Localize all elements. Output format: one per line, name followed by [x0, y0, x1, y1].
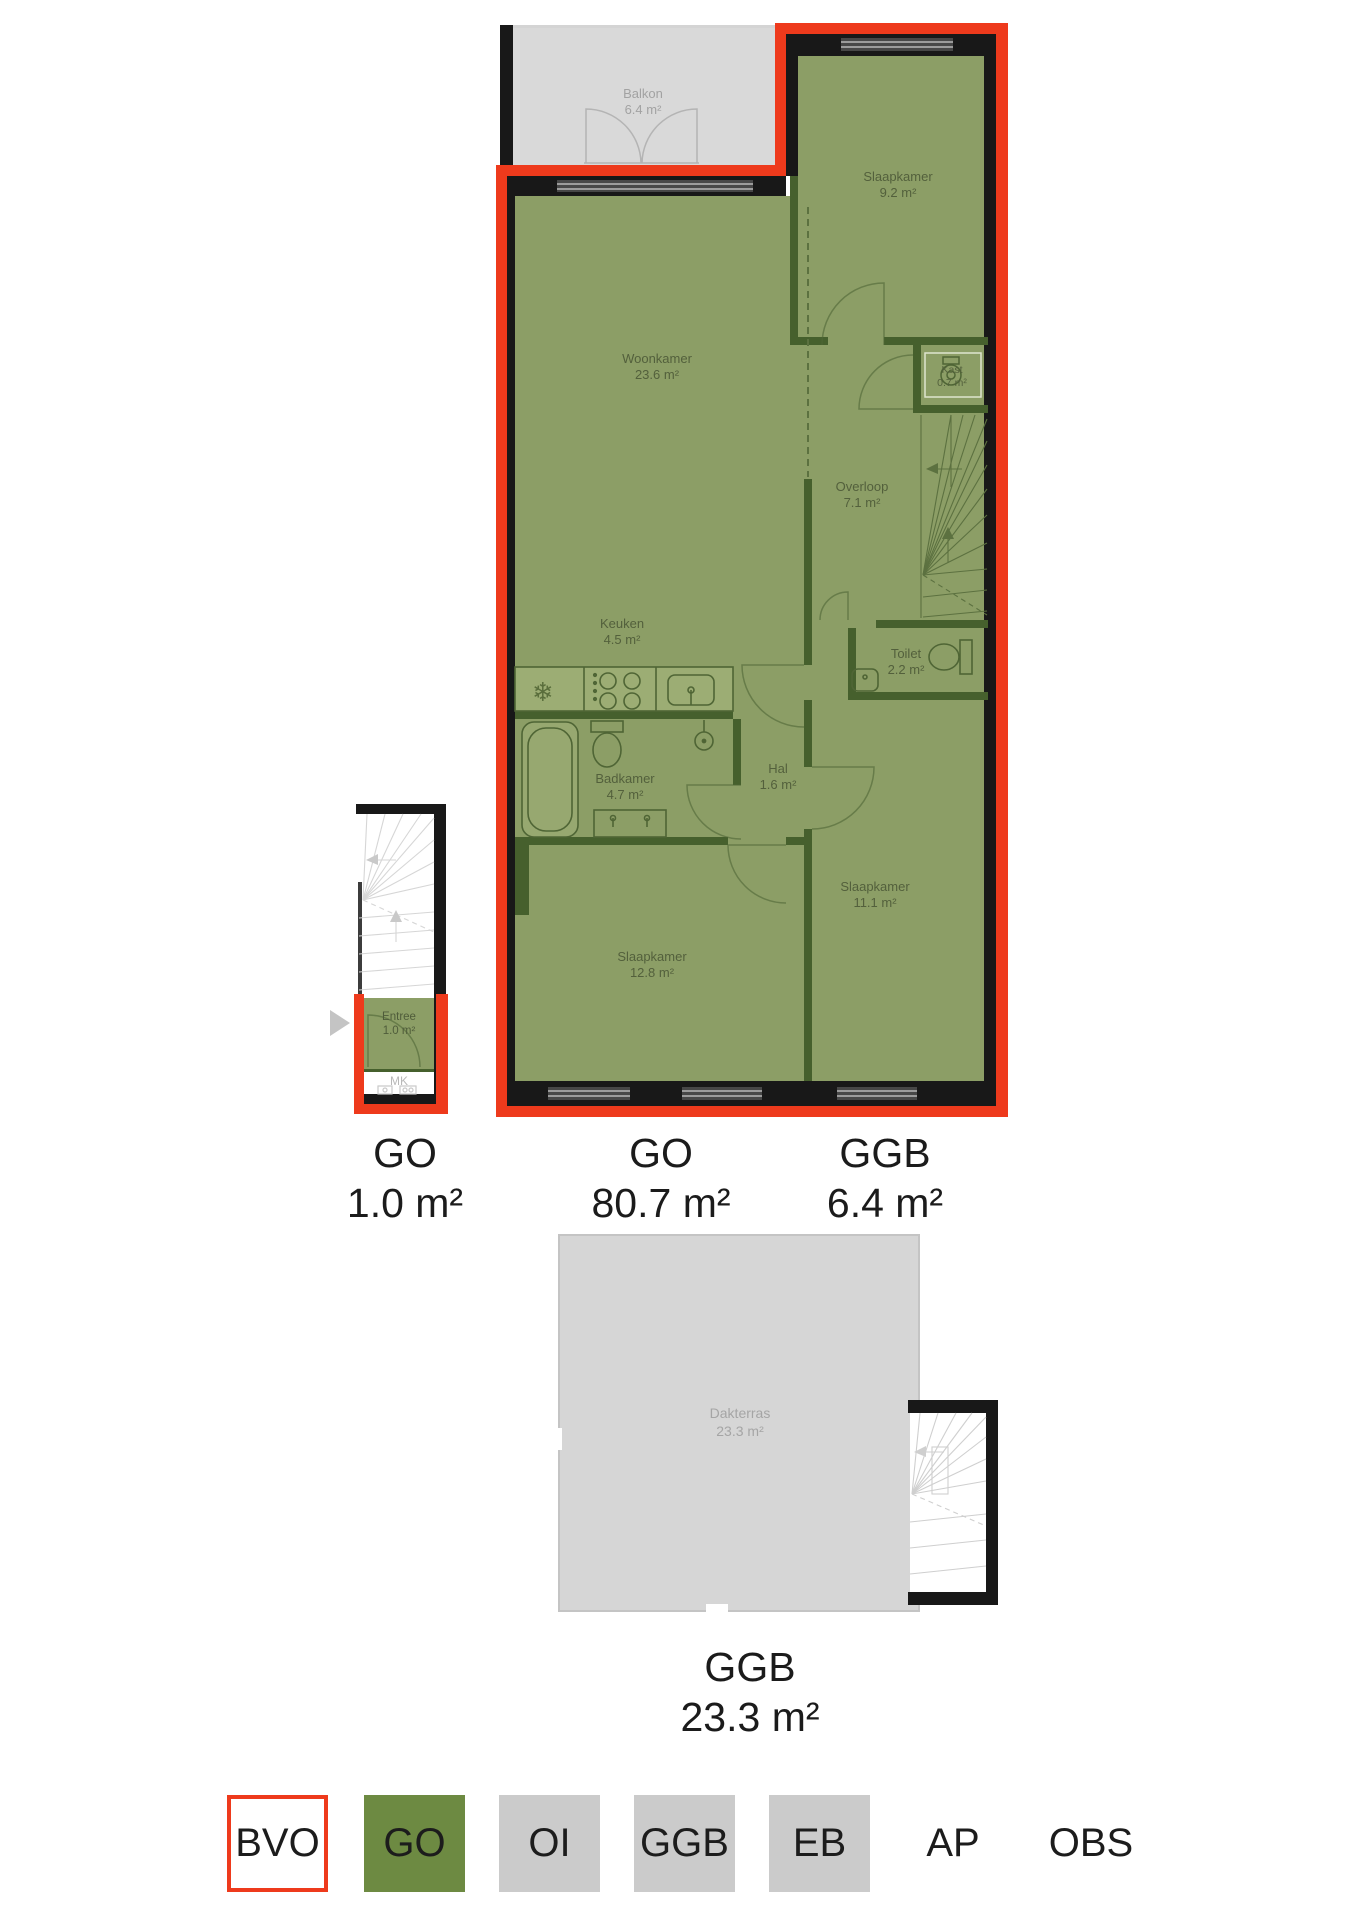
door-arc-kast — [859, 355, 913, 409]
room-label-entree: Entree1.0 m² — [382, 1010, 416, 1038]
room-name: Slaapkamer — [863, 169, 932, 185]
room-name: Kast — [937, 364, 967, 377]
room-area: 9.2 m² — [863, 185, 932, 201]
legend-code: BVO — [235, 1821, 319, 1866]
roof-linework — [556, 1232, 1006, 1613]
area-label-ggb-balcony: GGB 6.4 m² — [755, 1128, 1015, 1228]
room-label-balkon: Balkon6.4 m² — [623, 86, 663, 118]
roof-stairs — [910, 1413, 986, 1574]
legend-item-ap: AP — [903, 1795, 1003, 1892]
room-name: Keuken — [600, 616, 644, 632]
room-area: 23.6 m² — [622, 367, 692, 383]
room-area: 1.0 m² — [382, 1024, 416, 1038]
door-arc-toilet — [820, 592, 848, 620]
room-name: Woonkamer — [622, 351, 692, 367]
area-code: GO — [275, 1128, 535, 1178]
room-label-hal: Hal1.6 m² — [760, 761, 797, 793]
legend-item-obs: OBS — [1041, 1795, 1141, 1892]
room-label-slaapkamer-1: Slaapkamer9.2 m² — [863, 169, 932, 201]
room-name: Balkon — [623, 86, 663, 102]
door-arcs — [687, 283, 913, 903]
room-area: 0.7 m² — [937, 377, 967, 390]
wc-tank-icon — [960, 640, 972, 674]
entry-stairs — [359, 814, 434, 990]
legend-code: GO — [383, 1821, 445, 1866]
legend-code: GGB — [640, 1821, 729, 1866]
area-label-go-main: GO 80.7 m² — [531, 1128, 791, 1228]
room-label-toilet: Toilet2.2 m² — [888, 646, 925, 678]
room-name: Slaapkamer — [840, 879, 909, 895]
legend-item-go: GO — [364, 1795, 465, 1892]
roof-terrace-plan: Dakterras23.3 m² — [556, 1232, 1006, 1613]
room-area: 6.4 m² — [623, 102, 663, 118]
door-arc-hal — [742, 665, 804, 727]
area-label-ggb-roof: GGB 23.3 m² — [620, 1642, 880, 1742]
stair-arrow-up-icon — [390, 910, 402, 922]
legend-item-bvo: BVO — [227, 1795, 328, 1892]
door-arc-bedroom1 — [822, 283, 884, 345]
room-area: 11.1 m² — [840, 895, 909, 911]
area-code: GGB — [620, 1642, 880, 1692]
legend-item-ggb: GGB — [634, 1795, 735, 1892]
room-label-dakterras: Dakterras23.3 m² — [710, 1404, 771, 1440]
stair-arrow-icon — [926, 463, 938, 474]
area-value: 1.0 m² — [275, 1178, 535, 1228]
floorplan-page: ❄ — [0, 0, 1358, 1920]
legend-code: OBS — [1049, 1821, 1133, 1866]
room-name: Entree — [382, 1010, 416, 1024]
room-label-kast: Kast0.7 m² — [937, 364, 967, 390]
legend-code: AP — [926, 1821, 979, 1866]
area-value: 23.3 m² — [620, 1692, 880, 1742]
ground-floor-plan: Entree1.0 m² MK — [330, 798, 454, 1118]
room-area: 12.8 m² — [617, 965, 686, 981]
area-value: 6.4 m² — [755, 1178, 1015, 1228]
door-arc-bedroom2 — [728, 845, 786, 903]
toilet-tank-icon — [591, 721, 623, 732]
area-code: GGB — [755, 1128, 1015, 1178]
room-name: Hal — [760, 761, 797, 777]
room-name: Overloop — [836, 479, 889, 495]
area-label-go-entry: GO 1.0 m² — [275, 1128, 535, 1228]
entry-linework — [330, 798, 454, 1118]
room-label-mk: MK — [390, 1073, 408, 1089]
stairs-up — [921, 415, 987, 618]
room-area: 4.7 m² — [595, 787, 654, 803]
room-area: 7.1 m² — [836, 495, 889, 511]
room-area: 2.2 m² — [888, 662, 925, 678]
room-area: 1.6 m² — [760, 777, 797, 793]
area-code: GO — [531, 1128, 791, 1178]
bathtub-icon — [522, 722, 578, 837]
room-name: Slaapkamer — [617, 949, 686, 965]
door-arc-bathroom — [687, 785, 741, 839]
area-value: 80.7 m² — [531, 1178, 791, 1228]
legend-code: OI — [528, 1821, 570, 1866]
room-area: 23.3 m² — [710, 1422, 771, 1440]
room-area: 4.5 m² — [600, 632, 644, 648]
room-name: Toilet — [888, 646, 925, 662]
fridge-icon: ❄ — [532, 677, 554, 707]
legend-item-oi: OI — [499, 1795, 600, 1892]
room-label-slaapkamer-2: Slaapkamer12.8 m² — [617, 949, 686, 981]
room-label-slaapkamer-3: Slaapkamer11.1 m² — [840, 879, 909, 911]
door-arc-bedroom3 — [812, 767, 874, 829]
room-name: MK — [390, 1073, 408, 1089]
room-label-badkamer: Badkamer4.7 m² — [595, 771, 654, 803]
room-label-keuken: Keuken4.5 m² — [600, 616, 644, 648]
kitchen-counter: ❄ — [515, 667, 733, 711]
room-name: Badkamer — [595, 771, 654, 787]
wc-bowl-icon — [929, 644, 959, 670]
room-name: Dakterras — [710, 1404, 771, 1422]
first-floor-plan: ❄ — [496, 17, 1008, 1117]
stair-arrow-up-icon — [942, 527, 954, 539]
legend-item-eb: EB — [769, 1795, 870, 1892]
room-label-overloop: Overloop7.1 m² — [836, 479, 889, 511]
vanity-icon — [594, 810, 666, 837]
wc-sink-icon — [852, 669, 878, 691]
room-label-woonkamer: Woonkamer23.6 m² — [622, 351, 692, 383]
toilet-bowl-icon — [593, 733, 621, 767]
legend-code: EB — [793, 1821, 846, 1866]
